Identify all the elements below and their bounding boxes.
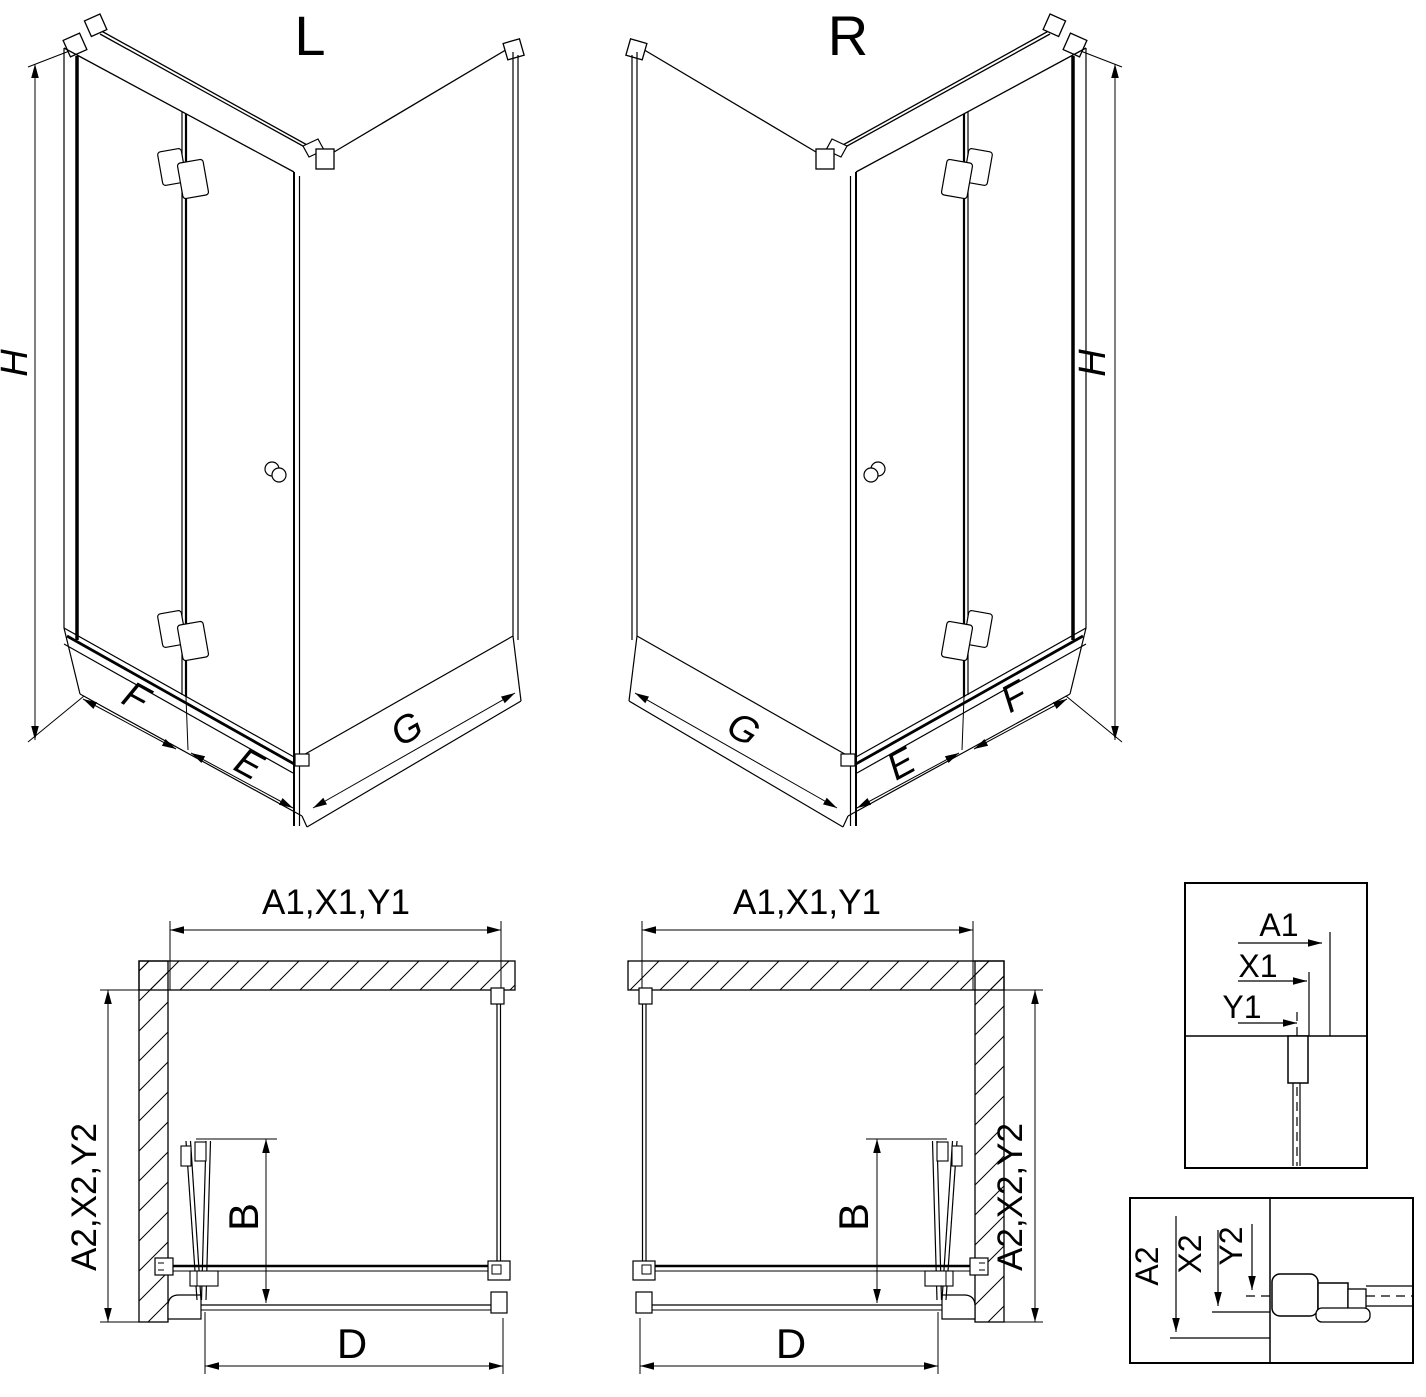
return-width-label-left: G — [384, 704, 431, 755]
detail-a2-label: A2 — [1129, 1246, 1165, 1285]
detail-box-bottom: A2 X2 Y2 — [1129, 1198, 1413, 1363]
plan-door-dim-label-left: B — [220, 1203, 267, 1231]
return-width-label-right: G — [720, 704, 767, 755]
shower-enclosure-technical-drawing: L H F E G R H F E G A1,X1,Y1 A2,X2,Y2 B … — [0, 0, 1426, 1397]
drawing-canvas: L H F E G R H F E G A1,X1,Y1 A2,X2,Y2 B … — [0, 0, 1426, 1397]
iso-view-left: L H F E G — [0, 4, 524, 827]
plan-top-dim-label-right: A1,X1,Y1 — [733, 883, 881, 922]
detail-a1-label: A1 — [1259, 907, 1298, 943]
plan-side-dim-label-right: A2,X2,Y2 — [991, 1123, 1030, 1271]
height-label-left: H — [0, 349, 36, 377]
detail-x1-label: X1 — [1238, 948, 1277, 984]
detail-box-top: A1 X1 Y1 — [1185, 883, 1367, 1168]
detail-y2-label: Y2 — [1213, 1226, 1249, 1265]
height-label-right: H — [1072, 349, 1114, 377]
plan-view-left: A1,X1,Y1 A2,X2,Y2 B D — [65, 883, 515, 1374]
detail-top-profile — [1288, 1036, 1308, 1166]
plan-front-dim-label-left: D — [337, 1320, 367, 1367]
plan-door-dim-label-right: B — [830, 1203, 877, 1231]
detail-y1-label: Y1 — [1222, 989, 1261, 1025]
variant-label-left: L — [294, 4, 325, 67]
iso-view-right: R H F E G — [626, 4, 1122, 827]
detail-bottom-profile — [1272, 1274, 1412, 1322]
variant-label-right: R — [828, 4, 868, 67]
plan-top-dim-label-left: A1,X1,Y1 — [262, 883, 410, 922]
plan-view-right: A1,X1,Y1 A2,X2,Y2 B D — [628, 883, 1043, 1374]
fixed-width-label-left: F — [116, 673, 158, 722]
fixed-width-label-right: F — [994, 673, 1036, 722]
detail-x2-label: X2 — [1172, 1234, 1208, 1273]
plan-side-dim-label-left: A2,X2,Y2 — [65, 1123, 104, 1271]
plan-front-dim-label-right: D — [776, 1320, 806, 1367]
